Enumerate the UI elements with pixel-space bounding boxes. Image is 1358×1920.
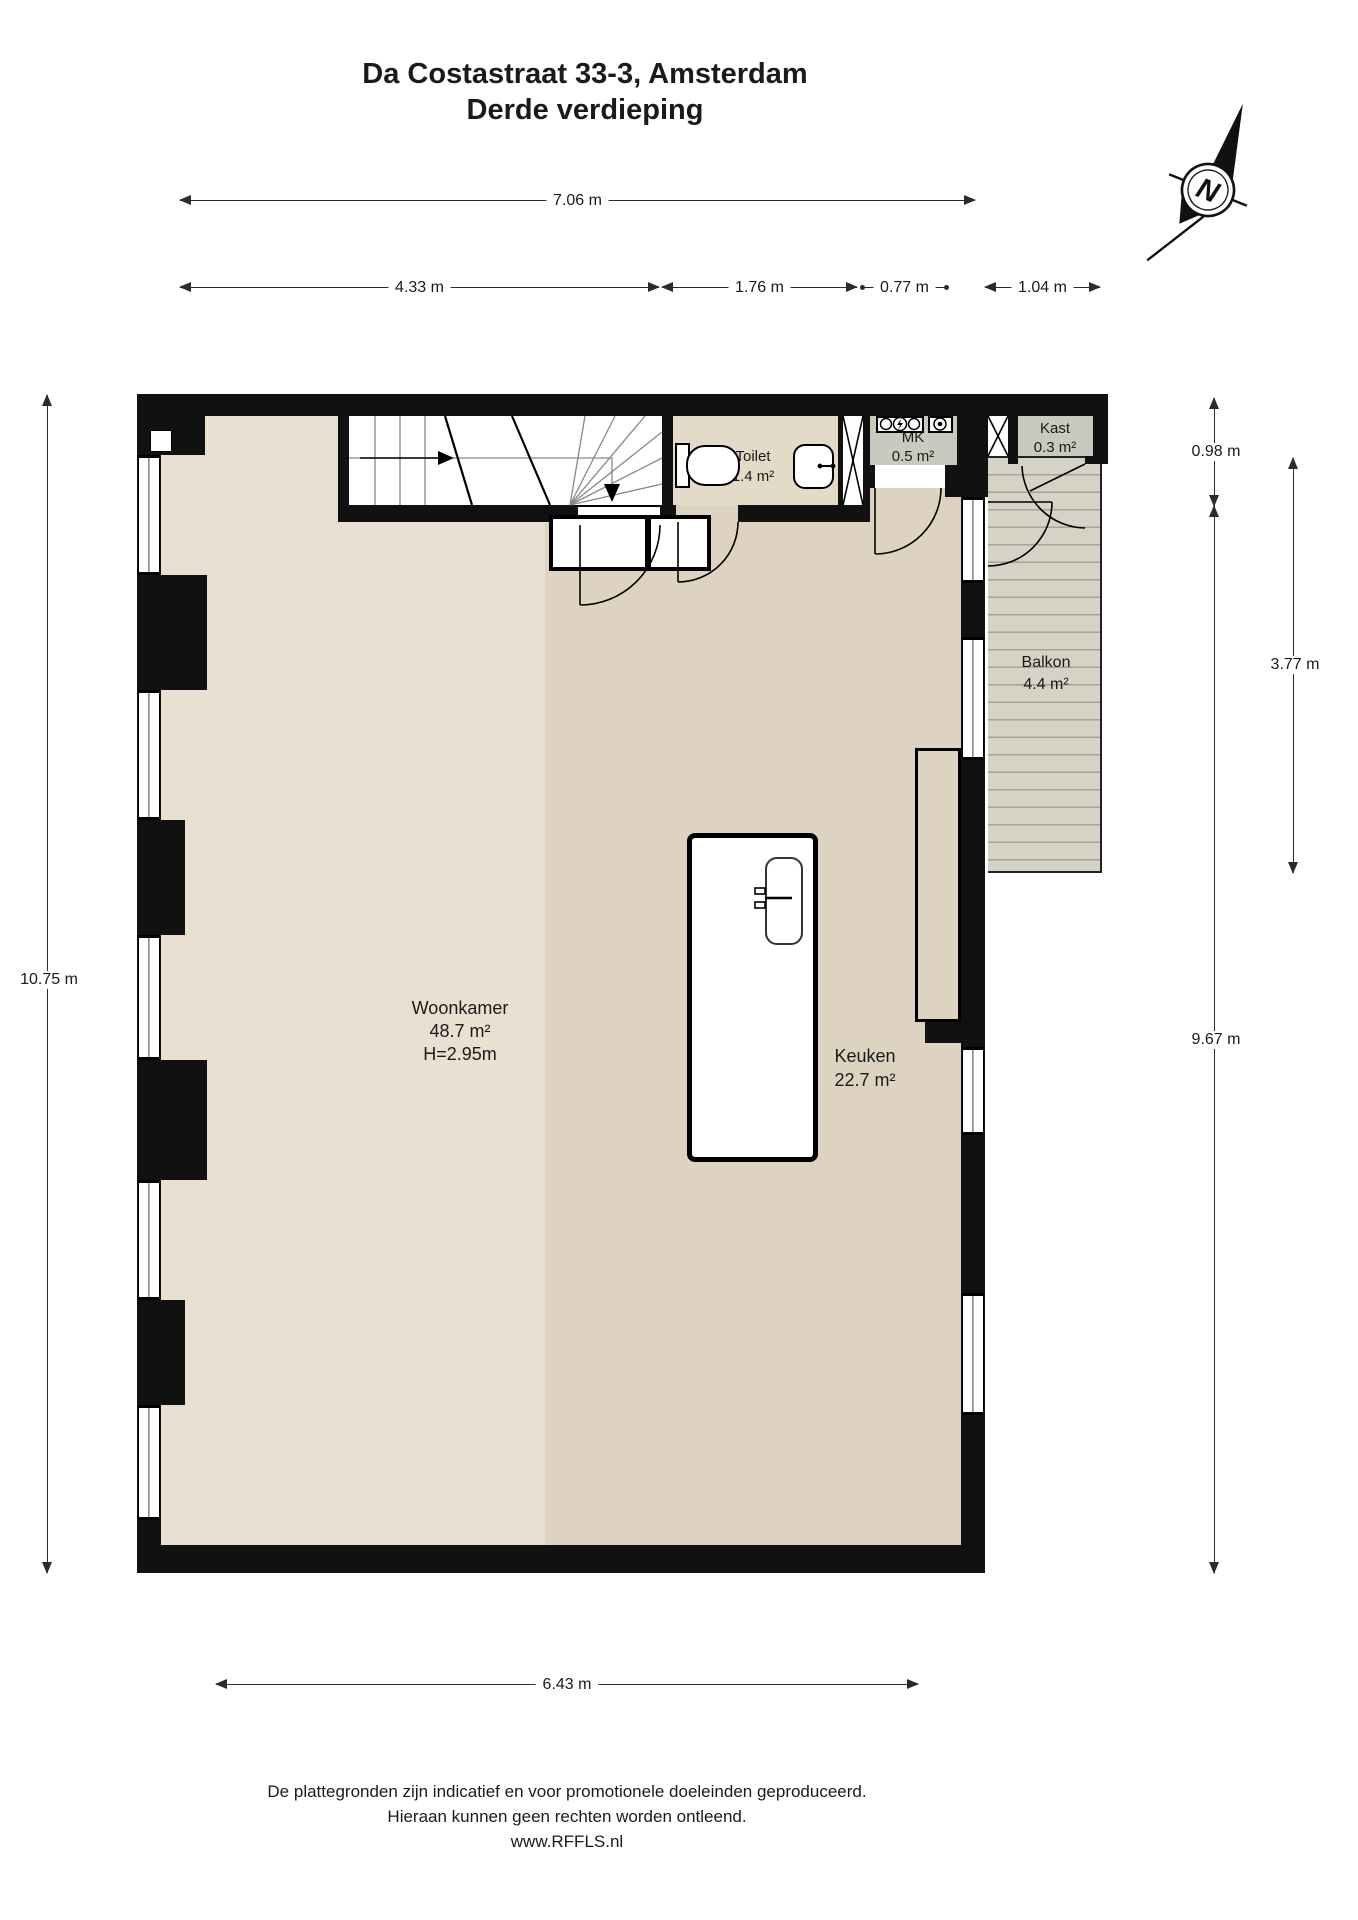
dim-bottom-width: 6.43 m bbox=[216, 1684, 918, 1685]
dim-width-balcony: 1.04 m bbox=[985, 287, 1100, 288]
arrow-left-icon bbox=[661, 282, 673, 292]
mk-area: 0.5 m² bbox=[892, 447, 935, 466]
compass-north-icon: N bbox=[1136, 88, 1282, 287]
window-right-4 bbox=[962, 1293, 984, 1415]
wall-kast-jamb-left bbox=[1008, 456, 1018, 464]
dim-total-width: 7.06 m bbox=[180, 200, 975, 201]
arrow-left-icon bbox=[179, 282, 191, 292]
floorplan-page: Da Costastraat 33-3, Amsterdam Derde ver… bbox=[0, 0, 1358, 1920]
arrow-right-icon bbox=[846, 282, 858, 292]
room-label-keuken: Keuken 22.7 m² bbox=[834, 1044, 895, 1092]
shaft-1 bbox=[843, 416, 863, 505]
window-right-3 bbox=[962, 1047, 984, 1135]
room-label-mk: MK 0.5 m² bbox=[892, 428, 935, 466]
woonkamer-name: Woonkamer bbox=[412, 997, 509, 1020]
footer-line-2: Hieraan kunnen geen rechten worden ontle… bbox=[267, 1804, 866, 1829]
keuken-area: 22.7 m² bbox=[834, 1068, 895, 1092]
kitchen-tall-counter bbox=[915, 748, 961, 1022]
pillar-left-3 bbox=[137, 820, 185, 935]
wall-stairs-right bbox=[662, 416, 673, 505]
dim-total-width-label: 7.06 m bbox=[546, 192, 609, 210]
dim-balcony-height: 3.77 m bbox=[1293, 458, 1294, 873]
arrow-down-icon bbox=[1209, 1562, 1219, 1574]
room-label-balkon: Balkon 4.4 m² bbox=[1022, 652, 1071, 696]
dim-dot-icon bbox=[944, 285, 949, 290]
dim-width-toilet: 1.76 m bbox=[662, 287, 857, 288]
dim-right-top: 0.98 m bbox=[1214, 398, 1215, 506]
toilet-area: 1.4 m² bbox=[732, 467, 775, 487]
dim-width-living: 4.33 m bbox=[180, 287, 659, 288]
window-left-1 bbox=[138, 455, 160, 575]
kast-name: Kast bbox=[1034, 419, 1077, 438]
arrow-right-icon bbox=[964, 195, 976, 205]
room-label-kast: Kast 0.3 m² bbox=[1034, 419, 1077, 457]
shaft-2 bbox=[988, 416, 1008, 456]
room-label-woonkamer: Woonkamer 48.7 m² H=2.95m bbox=[412, 997, 509, 1066]
window-right-2 bbox=[962, 637, 984, 760]
wall-top bbox=[137, 394, 1108, 416]
woonkamer-height: H=2.95m bbox=[412, 1043, 509, 1066]
arrow-up-icon bbox=[42, 394, 52, 406]
dim-bottom-width-label: 6.43 m bbox=[536, 1676, 599, 1694]
arrow-right-icon bbox=[907, 1679, 919, 1689]
woonkamer-floor bbox=[161, 416, 545, 1545]
title-address: Da Costastraat 33-3, Amsterdam bbox=[362, 56, 807, 92]
window-left-3 bbox=[138, 935, 160, 1060]
arrow-up-icon bbox=[1209, 505, 1219, 517]
dim-left-height: 10.75 m bbox=[47, 395, 48, 1573]
wall-right-lower bbox=[961, 873, 985, 1545]
toilet-name: Toilet bbox=[732, 447, 775, 467]
dim-width-mk-label: 0.77 m bbox=[873, 279, 936, 297]
window-left-4 bbox=[138, 1180, 160, 1300]
mk-name: MK bbox=[892, 428, 935, 447]
pillar-left-4 bbox=[137, 1060, 207, 1180]
kitchen-counter-right bbox=[647, 515, 711, 571]
kitchen-counter-left bbox=[549, 515, 649, 571]
window-left-5 bbox=[138, 1405, 160, 1520]
compass-letter: N bbox=[1192, 172, 1224, 210]
island-sink bbox=[765, 857, 803, 945]
title-floor: Derde verdieping bbox=[362, 92, 807, 128]
dim-balcony-height-label: 3.77 m bbox=[1264, 656, 1327, 674]
dim-right-main: 9.67 m bbox=[1214, 506, 1215, 1573]
wall-mk-left bbox=[863, 416, 870, 505]
wall-mk-bottom-a bbox=[863, 465, 875, 488]
arrow-left-icon bbox=[984, 282, 996, 292]
arrow-down-icon bbox=[42, 1562, 52, 1574]
arrow-up-icon bbox=[1209, 397, 1219, 409]
kast-area: 0.3 m² bbox=[1034, 438, 1077, 457]
dim-right-top-label: 0.98 m bbox=[1185, 443, 1248, 461]
balkon-area: 4.4 m² bbox=[1022, 674, 1071, 696]
wall-kast-right bbox=[1093, 394, 1108, 462]
dim-width-balcony-label: 1.04 m bbox=[1011, 279, 1074, 297]
dim-width-mk: 0.77 m bbox=[862, 287, 947, 288]
footer-disclaimer: De plattegronden zijn indicatief en voor… bbox=[267, 1779, 866, 1854]
arrow-up-icon bbox=[1288, 457, 1298, 469]
wall-shaft2-right bbox=[1008, 416, 1018, 460]
arrow-down-icon bbox=[1288, 862, 1298, 874]
wall-kitchen-nib bbox=[925, 1022, 961, 1043]
arrow-left-icon bbox=[179, 195, 191, 205]
arrow-right-icon bbox=[648, 282, 660, 292]
wall-mk-bottom-b bbox=[945, 465, 988, 497]
dim-left-height-label: 10.75 m bbox=[13, 971, 85, 989]
pillar-left-5 bbox=[137, 1300, 185, 1405]
footer-line-3: www.RFFLS.nl bbox=[267, 1829, 866, 1854]
room-label-toilet: Toilet 1.4 m² bbox=[732, 447, 775, 487]
arrow-right-icon bbox=[1089, 282, 1101, 292]
wall-kast-jamb-right bbox=[1085, 456, 1108, 464]
balkon-name: Balkon bbox=[1022, 652, 1071, 674]
dim-right-main-label: 9.67 m bbox=[1185, 1031, 1248, 1049]
page-title: Da Costastraat 33-3, Amsterdam Derde ver… bbox=[362, 56, 807, 128]
stairs-area bbox=[349, 416, 662, 505]
dim-dot-icon bbox=[860, 285, 865, 290]
woonkamer-area: 48.7 m² bbox=[412, 1020, 509, 1043]
window-right-balcony-door bbox=[962, 497, 984, 583]
keuken-name: Keuken bbox=[834, 1044, 895, 1068]
arrow-left-icon bbox=[215, 1679, 227, 1689]
window-left-2 bbox=[138, 690, 160, 820]
footer-line-1: De plattegronden zijn indicatief en voor… bbox=[267, 1779, 866, 1804]
wall-bottom bbox=[137, 1545, 985, 1573]
dim-width-toilet-label: 1.76 m bbox=[728, 279, 791, 297]
pillar-top-left-notch bbox=[150, 430, 172, 452]
dim-width-living-label: 4.33 m bbox=[388, 279, 451, 297]
pillar-left-2 bbox=[137, 575, 207, 690]
